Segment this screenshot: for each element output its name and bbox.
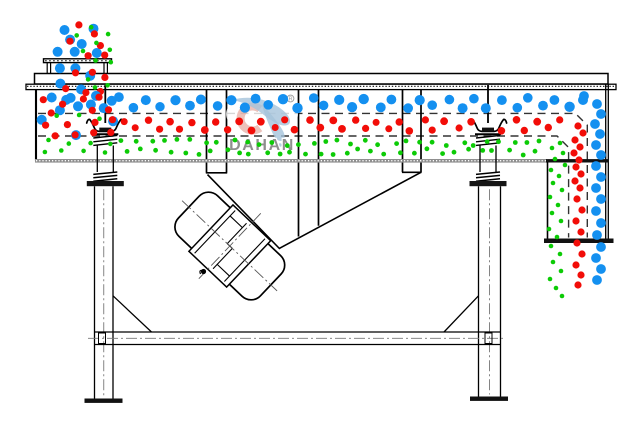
svg-text:R: R	[288, 97, 292, 103]
